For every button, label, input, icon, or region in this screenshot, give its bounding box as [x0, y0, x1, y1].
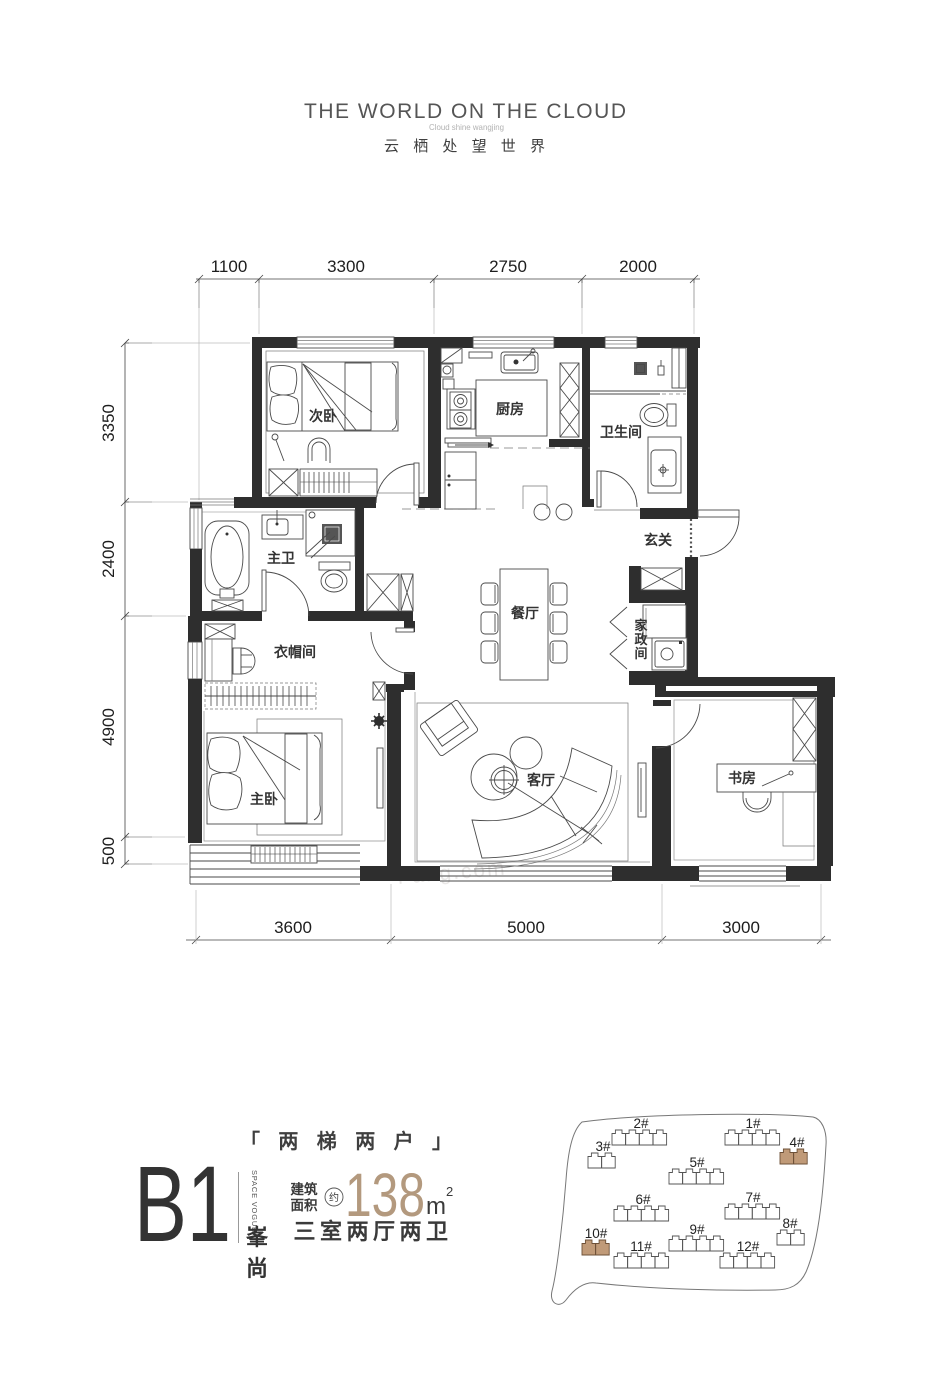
svg-text:3600: 3600 — [274, 918, 312, 937]
svg-text:次卧: 次卧 — [309, 408, 337, 424]
svg-text:2: 2 — [446, 1184, 453, 1199]
svg-text:7#: 7# — [745, 1190, 761, 1205]
svg-text:「两梯两户」: 「两梯两户」 — [240, 1129, 452, 1153]
svg-text:尚: 尚 — [246, 1256, 268, 1281]
svg-text:5000: 5000 — [507, 918, 545, 937]
svg-text:2750: 2750 — [489, 257, 527, 276]
svg-text:1#: 1# — [745, 1116, 761, 1131]
svg-text:1100: 1100 — [211, 257, 248, 276]
svg-text:主卧: 主卧 — [250, 791, 278, 807]
svg-text:Cloud shine wangjing: Cloud shine wangjing — [429, 122, 504, 132]
svg-text:约: 约 — [329, 1191, 339, 1204]
svg-text:主卫: 主卫 — [267, 550, 295, 566]
svg-text:客厅: 客厅 — [526, 772, 555, 788]
svg-text:建筑: 建筑 — [290, 1181, 318, 1197]
svg-text:间: 间 — [634, 646, 647, 661]
svg-text:12#: 12# — [737, 1239, 760, 1254]
svg-text:玄关: 玄关 — [644, 532, 672, 548]
svg-text:8#: 8# — [782, 1216, 798, 1231]
svg-text:餐厅: 餐厅 — [510, 605, 539, 621]
svg-text:面积: 面积 — [291, 1197, 318, 1213]
svg-text:衣帽间: 衣帽间 — [274, 644, 316, 660]
svg-text:云栖处望世界: 云栖处望世界 — [384, 138, 545, 155]
svg-text:SPACE VOGUE: SPACE VOGUE — [250, 1170, 259, 1233]
svg-text:3000: 3000 — [722, 918, 760, 937]
svg-text:9#: 9# — [689, 1222, 705, 1237]
svg-text:三室两厅两卫: 三室两厅两卫 — [293, 1219, 452, 1244]
svg-text:2#: 2# — [633, 1116, 649, 1131]
svg-text:3350: 3350 — [99, 404, 118, 442]
svg-text:卫生间: 卫生间 — [600, 424, 642, 440]
svg-text:3300: 3300 — [327, 257, 365, 276]
svg-text:11#: 11# — [630, 1239, 652, 1254]
svg-text:10#: 10# — [585, 1226, 608, 1241]
svg-text:4#: 4# — [789, 1135, 805, 1150]
svg-text:THE WORLD ON THE CLOUD: THE WORLD ON THE CLOUD — [304, 100, 626, 123]
svg-text:2000: 2000 — [619, 257, 657, 276]
svg-text:厨房: 厨房 — [496, 401, 524, 417]
svg-text:3#: 3# — [595, 1139, 611, 1154]
svg-text:m: m — [426, 1193, 446, 1220]
svg-text:500: 500 — [99, 837, 118, 865]
svg-text:B1: B1 — [134, 1143, 231, 1264]
svg-text:4900: 4900 — [99, 708, 118, 746]
svg-text:政: 政 — [634, 632, 648, 647]
svg-text:家: 家 — [634, 618, 648, 633]
svg-text:峯: 峯 — [246, 1225, 269, 1250]
svg-text:5#: 5# — [689, 1155, 705, 1170]
svg-text:书房: 书房 — [728, 770, 756, 786]
svg-text:6#: 6# — [635, 1192, 651, 1207]
svg-text:2400: 2400 — [99, 540, 118, 578]
